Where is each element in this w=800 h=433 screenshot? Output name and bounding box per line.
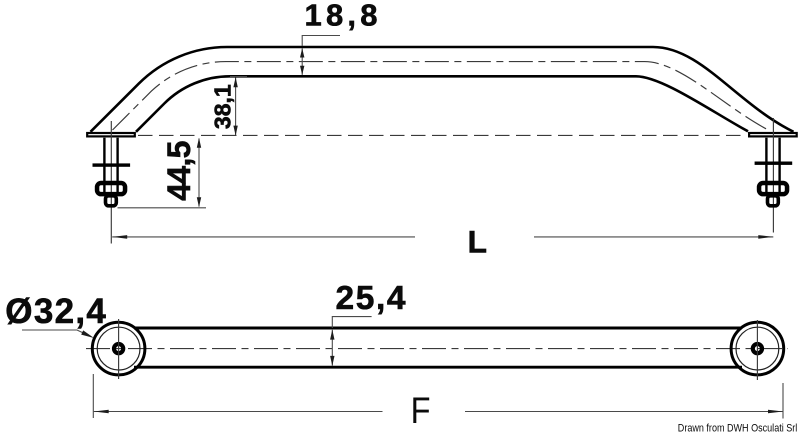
- svg-text:L: L: [468, 224, 487, 260]
- svg-text:Drawn from DWH Osculati Srl: Drawn from DWH Osculati Srl: [678, 423, 798, 433]
- svg-text:38,1: 38,1: [210, 84, 236, 129]
- svg-text:18,8: 18,8: [305, 0, 382, 32]
- svg-text:Ø32,4: Ø32,4: [5, 292, 107, 331]
- svg-text:F: F: [411, 390, 431, 431]
- svg-text:25,4: 25,4: [336, 280, 408, 317]
- svg-text:44,5: 44,5: [161, 141, 197, 200]
